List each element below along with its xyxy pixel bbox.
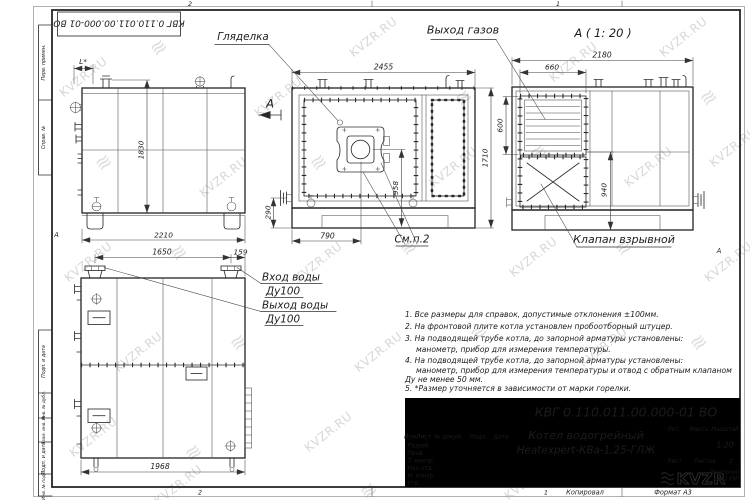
col-data: Дата [492, 435, 508, 441]
col-doc: № докум. [433, 435, 463, 441]
sheets-value: 1 [729, 458, 733, 465]
scale-label: Масштаб [711, 427, 739, 433]
label-water-in-dn: Ду100 [265, 286, 300, 298]
dim-290: 290 [264, 205, 273, 219]
title-block: КВГ 0.110.011.00.000-01 ВО Котел водогре… [404, 398, 740, 488]
col-podp: Подп. [470, 435, 488, 441]
dim-940: 940 [600, 183, 609, 197]
dim-958: 958 [391, 181, 400, 195]
dim-660: 660 [545, 63, 559, 72]
dim-1968: 1968 [150, 462, 169, 471]
note-line: манометр, прибор для измерения температу… [416, 366, 732, 375]
row-tkontr: Т. контр. [408, 458, 435, 464]
zone-bottom-right: 1 [544, 490, 548, 497]
row-razrab: Разраб. [408, 443, 431, 449]
view-plan: 1650 159 1968 Вход воды Ду100 Выход воды… [75, 248, 337, 476]
margin-box-vzam: Взам. инв. № [41, 415, 47, 445]
drawing-sheet: KVZR.RU≋KVZR.RUKVZR.RU≋KVZR.RUKVZR.RU≋≋K… [0, 0, 750, 500]
technical-drawing: 2 1 2 1 Копировал Формат А3 А А КВГ 0.11… [0, 0, 750, 500]
zone-top-right: 1 [556, 1, 560, 8]
row-prov: Пров. [408, 451, 425, 457]
row-nkontr: Н. контр. [408, 473, 436, 479]
sheet-label: Лист [666, 459, 682, 465]
dim-159: 159 [233, 248, 247, 257]
label-explosion-valve: Клапан взрывной [573, 233, 675, 246]
note-line: 1. Все размеры для справок, допустимые о… [405, 310, 659, 319]
dim-1650: 1650 [152, 248, 171, 257]
note-line: 4. На подводящей трубе котла, до запорно… [405, 356, 683, 365]
notes-block: 1. Все размеры для справок, допустимые о… [404, 310, 732, 393]
margin-box-perv: Перв. примен. [41, 44, 47, 80]
note-line: манометр, прибор для измерения температу… [416, 345, 611, 354]
product-name-line2: Heatexpert-КВа-1,25-ГЛЖ [517, 445, 656, 457]
zone-top-left: 2 [188, 1, 192, 8]
margin-box-podp2: Подп. и дата [41, 442, 47, 475]
view-arrow-label: А [265, 97, 274, 111]
dim-2210: 2210 [154, 231, 173, 240]
view-front: 2455 1710 958 790 290 Гляделка См.п.2 [215, 31, 494, 246]
row-nach: Нач.отд. [408, 466, 434, 472]
note-line: 5. *Размер уточняется в зависимости от м… [405, 384, 631, 393]
fold-mark-left: А [53, 231, 59, 239]
view-a-title: А ( 1: 20 ) [573, 26, 631, 40]
margin-box-podp1: Подп. и дата [41, 345, 47, 378]
dim-2180: 2180 [592, 51, 611, 60]
logo-sub-line2: завод РЭП [713, 477, 739, 483]
label-sight-glass: Гляделка [217, 31, 269, 43]
note-line: Ду не менее 50 мм. [404, 375, 483, 384]
dim-1830: 1830 [137, 140, 146, 159]
logo-sub-line1: Котельный [711, 470, 739, 476]
format-label: Формат А3 [654, 489, 692, 497]
view-side: L* 1830 2210 А [70, 57, 281, 243]
row-utv: Утв. [408, 481, 420, 487]
label-gas-outlet: Выход газов [427, 24, 499, 37]
scale-value: 1:20 [716, 441, 733, 450]
product-name-line1: Котел водогрейный [528, 429, 644, 442]
note-line: 3. На подводящей трубе котла, до запорно… [405, 334, 683, 343]
dim-790: 790 [320, 232, 335, 241]
col-list: Лист [415, 435, 431, 441]
copied-label: Копировал [566, 489, 604, 497]
margin-box-sprav: Справ. № [41, 126, 47, 149]
label-water-out: Выход воды [262, 300, 328, 312]
label-water-out-dn: Ду100 [265, 314, 300, 326]
label-water-in: Вход воды [262, 272, 320, 284]
margin-box-inv-podl: Инв. № подл. [41, 470, 47, 500]
dim-1710: 1710 [481, 148, 490, 167]
zone-bottom-left: 2 [198, 490, 202, 497]
sheets-label: Листов [693, 459, 716, 465]
fold-mark-right: А [716, 247, 722, 255]
dim-2455: 2455 [374, 63, 393, 72]
dim-600: 600 [496, 118, 505, 132]
titleblock-doc-number: КВГ 0.110.011.00.000-01 ВО [535, 405, 718, 420]
dim-l-star: L* [79, 57, 87, 66]
note-line: 2. На фронтовой плите котла установлен п… [405, 322, 673, 331]
doc-number-rotated: КВГ 0.110.011.00.000-01 ВО [53, 18, 184, 28]
lit-label: Лит. [666, 427, 681, 433]
mass-label: Масса [690, 427, 709, 433]
view-rear: А ( 1: 20 ) 2180 [427, 24, 704, 248]
